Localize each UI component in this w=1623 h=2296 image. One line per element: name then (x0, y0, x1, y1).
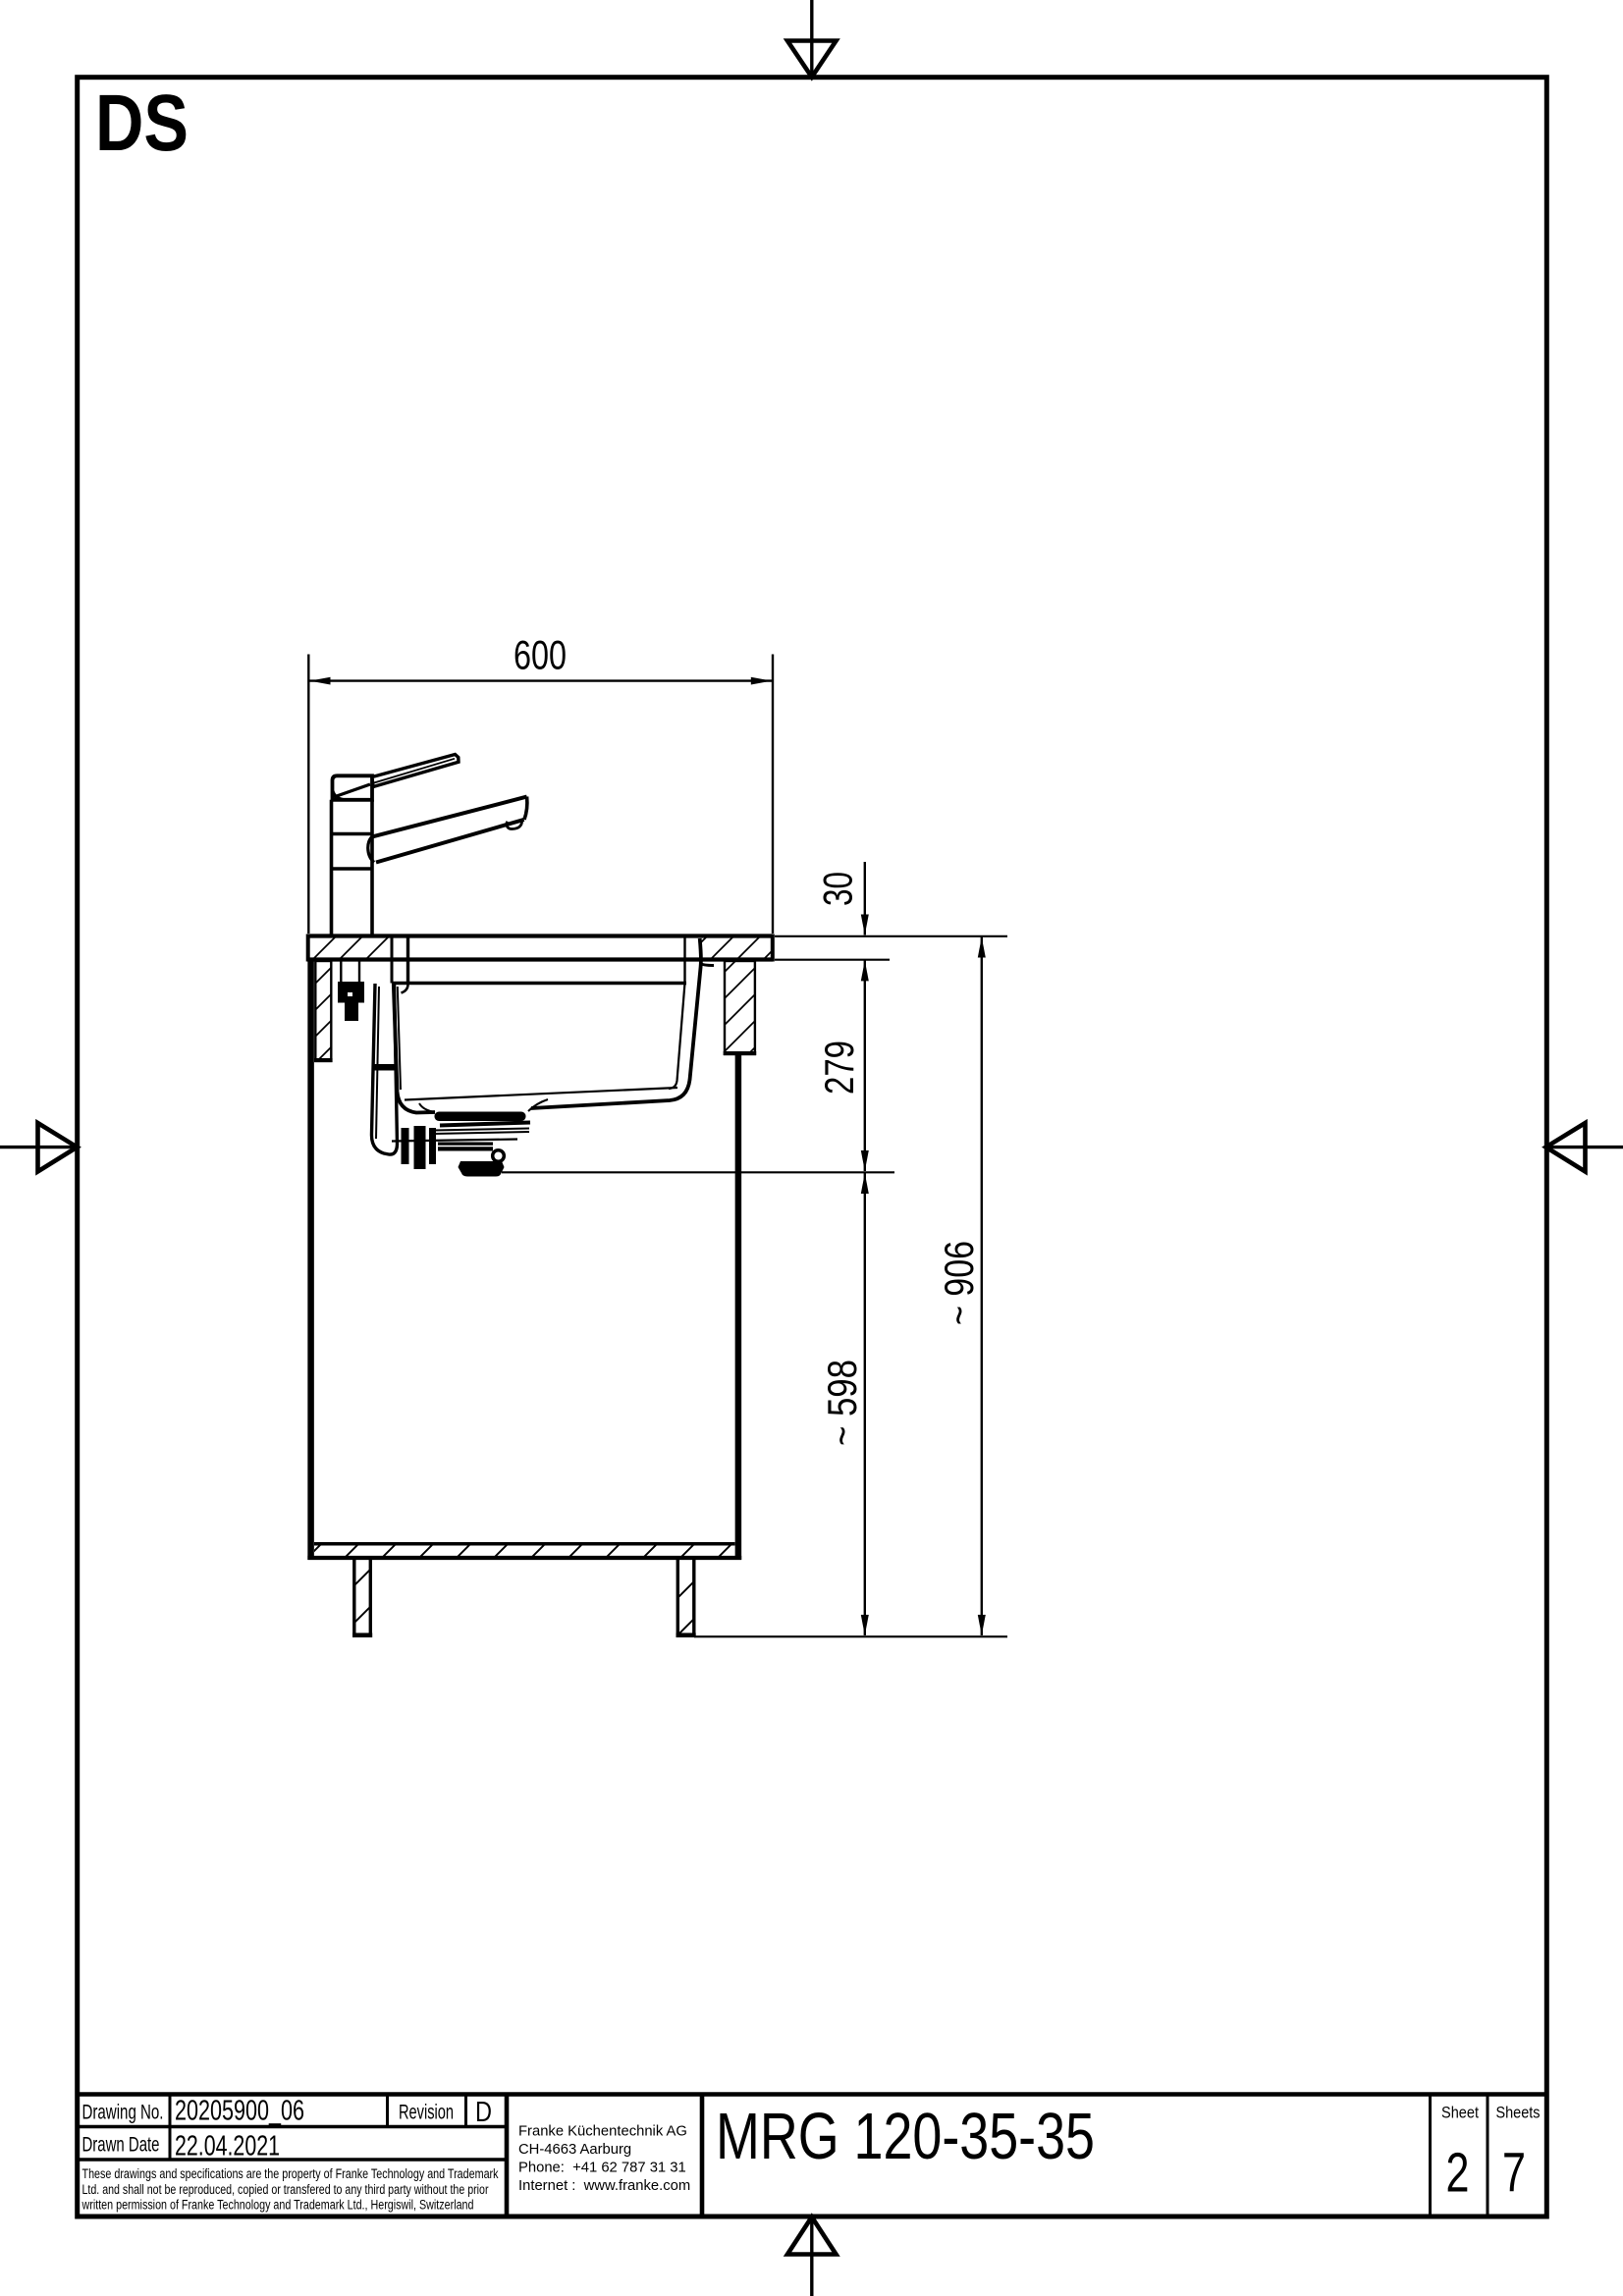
svg-text:Sheets: Sheets (1496, 2103, 1541, 2121)
svg-text:~ 906: ~ 906 (936, 1241, 982, 1325)
svg-text:Revision: Revision (399, 2102, 454, 2124)
svg-text:600: 600 (514, 632, 567, 678)
svg-text:Ltd. and shall not be reproduc: Ltd. and shall not be reproduced, copied… (82, 2182, 489, 2197)
svg-text:~ 598: ~ 598 (819, 1360, 865, 1446)
svg-text:Phone: +41 62 787 31 31: Phone: +41 62 787 31 31 (518, 2161, 686, 2176)
svg-text:written permission of Franke T: written permission of Franke Technology … (81, 2198, 474, 2213)
svg-text:279: 279 (816, 1041, 862, 1095)
svg-text:30: 30 (815, 872, 861, 906)
svg-text:Drawing No.: Drawing No. (82, 2102, 164, 2124)
svg-text:Drawn Date: Drawn Date (82, 2134, 160, 2157)
svg-text:2: 2 (1446, 2142, 1470, 2204)
svg-text:CH-4663 Aarburg: CH-4663 Aarburg (518, 2142, 631, 2158)
svg-text:MRG 120-35-35: MRG 120-35-35 (716, 2100, 1095, 2173)
svg-text:These drawings and specificati: These drawings and specifications are th… (82, 2166, 499, 2181)
svg-text:Sheet: Sheet (1441, 2103, 1479, 2121)
svg-text:Franke Küchentechnik AG: Franke Küchentechnik AG (518, 2123, 687, 2139)
svg-text:DS: DS (95, 79, 189, 168)
svg-text:Internet : www.franke.com: Internet : www.franke.com (518, 2178, 690, 2194)
svg-text:22.04.2021: 22.04.2021 (175, 2131, 280, 2163)
svg-text:20205900_06: 20205900_06 (175, 2096, 304, 2127)
svg-text:D: D (475, 2097, 492, 2128)
svg-text:7: 7 (1502, 2142, 1526, 2204)
